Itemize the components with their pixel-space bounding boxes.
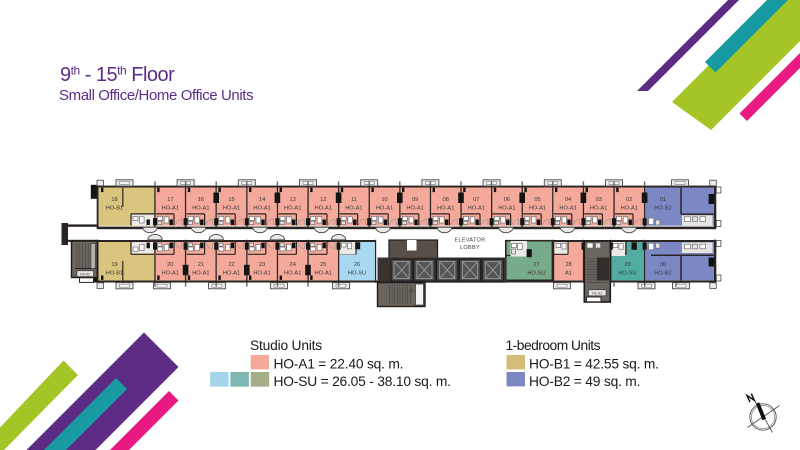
svg-text:24: 24 <box>290 262 296 268</box>
svg-text:HO-A1: HO-A1 <box>162 270 179 276</box>
svg-text:HO-A1: HO-A1 <box>192 205 209 211</box>
svg-text:HO-A1: HO-A1 <box>284 270 301 276</box>
svg-text:07: 07 <box>473 197 479 203</box>
svg-text:A1: A1 <box>565 270 572 276</box>
svg-text:04: 04 <box>565 197 571 203</box>
svg-text:30: 30 <box>660 262 666 268</box>
svg-text:01: 01 <box>660 197 666 203</box>
svg-text:03: 03 <box>409 289 413 293</box>
svg-text:HO-B2: HO-B2 <box>654 205 671 211</box>
svg-text:HO-B1: HO-B1 <box>106 270 123 276</box>
svg-text:26: 26 <box>354 262 360 268</box>
svg-text:HO-A1: HO-A1 <box>345 205 362 211</box>
svg-text:10: 10 <box>381 197 387 203</box>
svg-text:HO-A1: HO-A1 <box>253 270 270 276</box>
svg-text:HO-A1: HO-A1 <box>315 205 332 211</box>
svg-text:Studio Units: Studio Units <box>250 338 322 353</box>
svg-text:HO-A1: HO-A1 <box>559 205 576 211</box>
svg-text:13: 13 <box>290 197 296 203</box>
svg-text:27: 27 <box>533 262 539 268</box>
svg-text:HO-B1: HO-B1 <box>106 205 123 211</box>
svg-text:HO-A1: HO-A1 <box>162 205 179 211</box>
svg-text:14: 14 <box>259 197 265 203</box>
svg-text:LOBBY: LOBBY <box>460 245 480 251</box>
svg-text:HO-A1: HO-A1 <box>498 205 515 211</box>
svg-text:19: 19 <box>111 262 117 268</box>
svg-text:Small Office/Home Office Units: Small Office/Home Office Units <box>59 87 253 104</box>
svg-text:HO-A1: HO-A1 <box>406 205 423 211</box>
svg-text:HO-B2: HO-B2 <box>654 270 671 276</box>
svg-text:HO-B1 = 42.55 sq. m.: HO-B1 = 42.55 sq. m. <box>529 356 659 371</box>
svg-text:HO-A1: HO-A1 <box>223 270 240 276</box>
svg-text:15: 15 <box>228 197 234 203</box>
svg-text:HO-SU: HO-SU <box>527 270 545 276</box>
svg-text:20: 20 <box>167 262 173 268</box>
svg-text:29: 29 <box>624 262 630 268</box>
svg-text:21: 21 <box>198 262 204 268</box>
svg-text:HO-A1: HO-A1 <box>223 205 240 211</box>
svg-text:FE-01: FE-01 <box>592 292 602 296</box>
svg-text:12: 12 <box>320 197 326 203</box>
svg-text:17: 17 <box>167 197 173 203</box>
svg-text:28: 28 <box>565 262 571 268</box>
svg-text:HO-A1: HO-A1 <box>253 205 270 211</box>
svg-text:ELEVATOR: ELEVATOR <box>455 238 486 244</box>
svg-text:9th - 15th Floor: 9th - 15th Floor <box>60 64 175 87</box>
svg-text:HO-A1: HO-A1 <box>468 205 485 211</box>
svg-text:HO-A1: HO-A1 <box>284 205 301 211</box>
svg-text:22: 22 <box>228 262 234 268</box>
svg-text:06: 06 <box>504 197 510 203</box>
svg-text:HO-A1: HO-A1 <box>529 205 546 211</box>
svg-text:18: 18 <box>111 197 117 203</box>
svg-text:FE-02: FE-02 <box>80 273 90 277</box>
svg-text:HO-A1: HO-A1 <box>192 270 209 276</box>
svg-text:09: 09 <box>412 197 418 203</box>
svg-text:HO-SU = 26.05 - 38.10 sq. m.: HO-SU = 26.05 - 38.10 sq. m. <box>274 374 451 389</box>
svg-text:23: 23 <box>259 262 265 268</box>
svg-text:HO-A1 = 22.40 sq. m.: HO-A1 = 22.40 sq. m. <box>274 356 404 371</box>
svg-text:05: 05 <box>534 197 540 203</box>
svg-text:HO-A1: HO-A1 <box>376 205 393 211</box>
svg-text:HO-SU: HO-SU <box>348 270 366 276</box>
svg-text:HO-A1: HO-A1 <box>437 205 454 211</box>
svg-text:02: 02 <box>626 197 632 203</box>
svg-text:1-bedroom Units: 1-bedroom Units <box>506 338 601 353</box>
svg-text:03: 03 <box>596 197 602 203</box>
svg-text:HO-A1: HO-A1 <box>621 205 638 211</box>
svg-text:16: 16 <box>198 197 204 203</box>
svg-text:HO-A1: HO-A1 <box>590 205 607 211</box>
svg-text:HO-B2 = 49 sq. m.: HO-B2 = 49 sq. m. <box>529 374 640 389</box>
svg-text:11: 11 <box>351 197 357 203</box>
svg-text:HO-SU: HO-SU <box>618 270 636 276</box>
svg-text:08: 08 <box>443 197 449 203</box>
svg-text:25: 25 <box>320 262 326 268</box>
svg-text:HO-A1: HO-A1 <box>315 270 332 276</box>
